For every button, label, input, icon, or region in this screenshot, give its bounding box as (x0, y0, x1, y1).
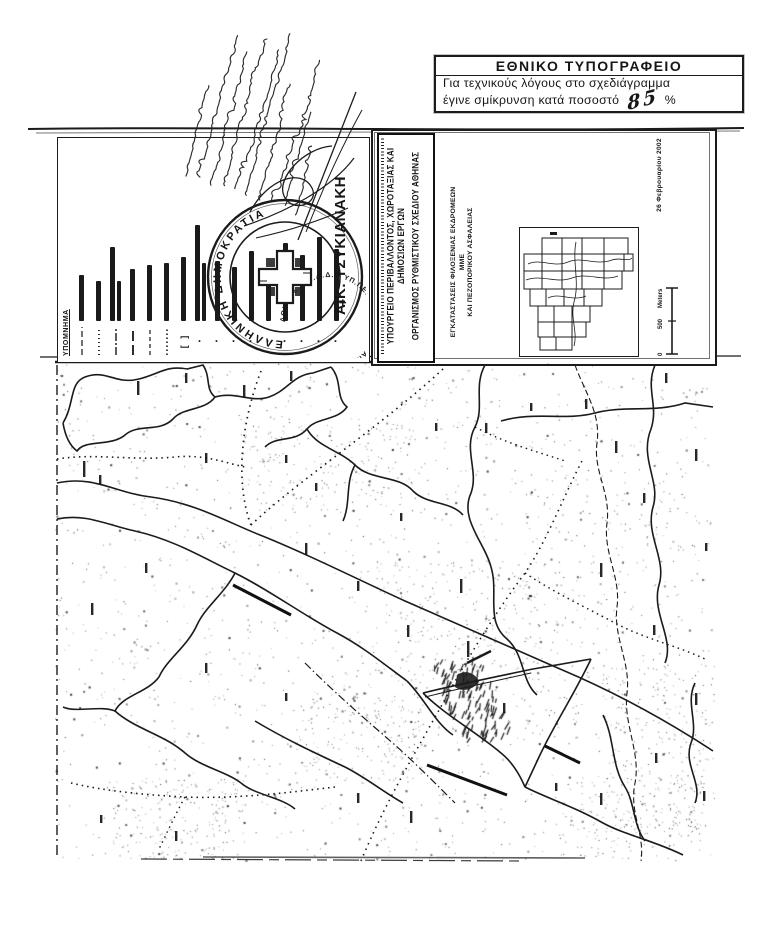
ministry-micro-text (381, 138, 384, 354)
map-bold-road-segments (233, 585, 580, 795)
project-title-rotated: ΕΓΚΑΤΑΣΤΑΣΕΙΣ ΦΙΛΟΞΕΝΙΑΣ ΕΚΔΡΟΜΕΩΝ ΜΜΕ Κ… (450, 178, 478, 346)
scale-mid-label: 500 (658, 318, 664, 329)
document-date: 26 Φεβρουαρίου 2002 (656, 138, 676, 212)
map-trails (57, 365, 705, 861)
scanned-map-document-page: { "colors": { "ink": "#161616", "paper":… (0, 0, 768, 950)
main-map (55, 363, 715, 863)
map-roads (57, 365, 713, 855)
settlement-blob (455, 672, 479, 690)
project-title-line1: ΕΓΚΑΤΑΣΤΑΣΕΙΣ ΦΙΛΟΞΕΝΙΑΣ ΕΚΔΡΟΜΕΩΝ ΜΜΕ (450, 178, 467, 346)
index-map-marker (550, 232, 557, 235)
ministry-line2: ΟΡΓΑΝΙΣΜΟΣ ΡΥΘΜΙΣΤΙΚΟΥ ΣΧΕΔΙΟΥ ΑΘΗΝΑΣ (410, 136, 420, 356)
project-title-line2: ΚΑΙ ΠΕΖΟΠΟΡΙΚΟΥ ΑΣΦΑΛΕΙΑΣ (467, 178, 476, 346)
index-map (519, 227, 639, 357)
map-label-marks (83, 371, 707, 841)
ministry-line1: ΥΠΟΥΡΓΕΙΟ ΠΕΡΙΒΑΛΛΟΝΤΟΣ, ΧΩΡΟΤΑΞΙΑΣ ΚΑΙ … (386, 136, 407, 356)
ministry-strip-text: ΥΠΟΥΡΓΕΙΟ ΠΕΡΙΒΑΛΛΟΝΤΟΣ, ΧΩΡΟΤΑΞΙΑΣ ΚΑΙ … (380, 136, 428, 356)
map-bottom-border (141, 859, 525, 861)
scale-bar-rotated: 0 500 Meters (648, 280, 686, 360)
scale-zero-label: 0 (658, 352, 664, 356)
index-map-tiles (524, 238, 633, 350)
scale-unit-label: Meters (658, 288, 664, 308)
handwritten-annotation (178, 14, 347, 215)
map-linework (55, 363, 715, 863)
